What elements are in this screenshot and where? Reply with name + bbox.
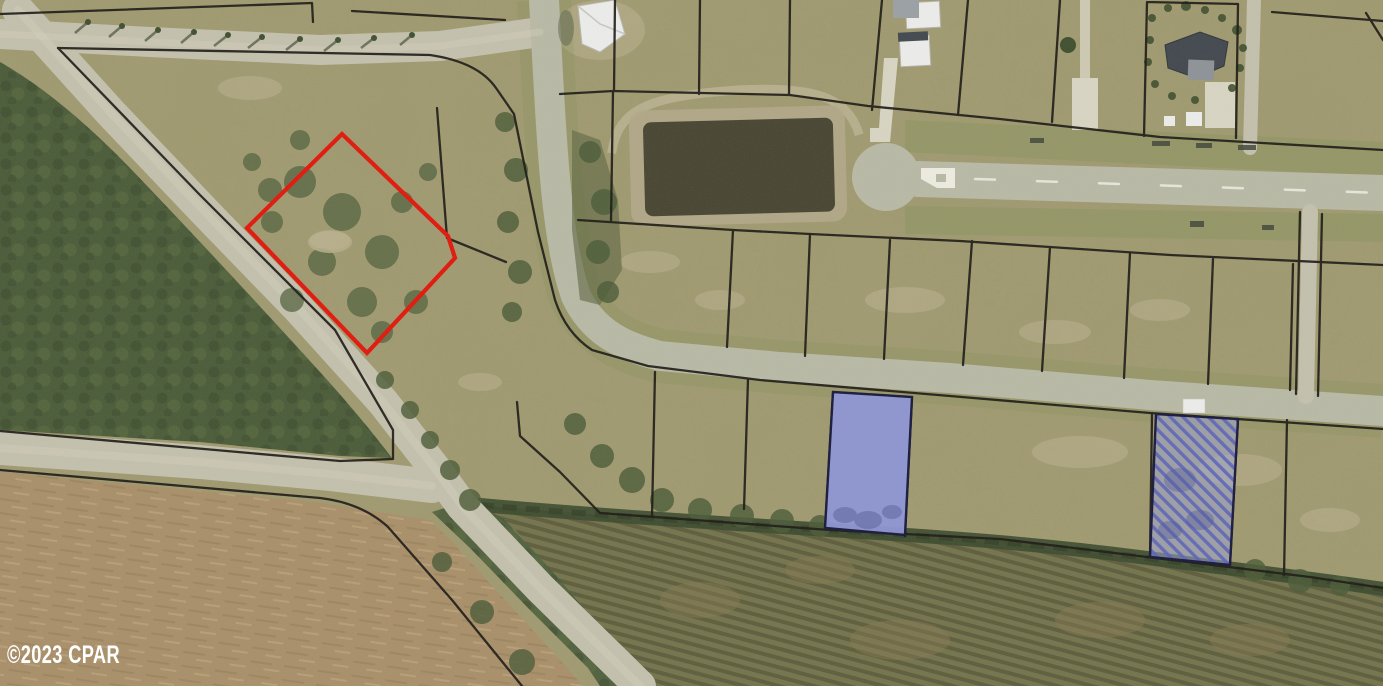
pale-patch	[458, 373, 502, 391]
orchard-patch	[1210, 624, 1290, 656]
basemap	[0, 0, 1383, 686]
small-white-structure	[1183, 399, 1205, 413]
house-shadow	[558, 10, 574, 46]
road-culdesac-arm	[918, 179, 1383, 193]
out-building	[1186, 112, 1202, 126]
culdesac-bulb	[852, 143, 920, 211]
out-building	[1164, 116, 1175, 126]
pale-patch	[695, 290, 745, 310]
house-roof-gray	[893, 0, 919, 18]
highlighted-parcel-hatched	[1150, 414, 1238, 565]
pale-patch	[1300, 508, 1360, 532]
lone-tree	[1060, 37, 1076, 53]
pale-patch	[620, 251, 680, 273]
side-path-east	[1306, 212, 1310, 396]
pond-water	[643, 118, 835, 217]
house-wing	[1188, 60, 1215, 81]
pale-patch	[1032, 436, 1128, 468]
orchard-patch	[1055, 602, 1145, 638]
driveway-pad	[870, 128, 888, 142]
pale-patch	[1019, 320, 1091, 344]
copyright-watermark: ©2023 CPAR	[7, 641, 120, 669]
pale-patch	[865, 287, 945, 313]
aerial-parcel-map: ©2023 CPAR	[0, 0, 1383, 686]
orchard-patch	[850, 620, 950, 660]
side-path-northeast	[1250, 0, 1254, 148]
pale-patch	[218, 76, 282, 100]
map-canvas: ©2023 CPAR	[0, 0, 1383, 686]
orchard-patch	[785, 556, 855, 584]
house-roof-dark-edge	[898, 31, 928, 42]
pale-patch	[1130, 299, 1190, 321]
orchard-patch	[660, 582, 740, 618]
pavement-marking-hole	[936, 174, 946, 182]
